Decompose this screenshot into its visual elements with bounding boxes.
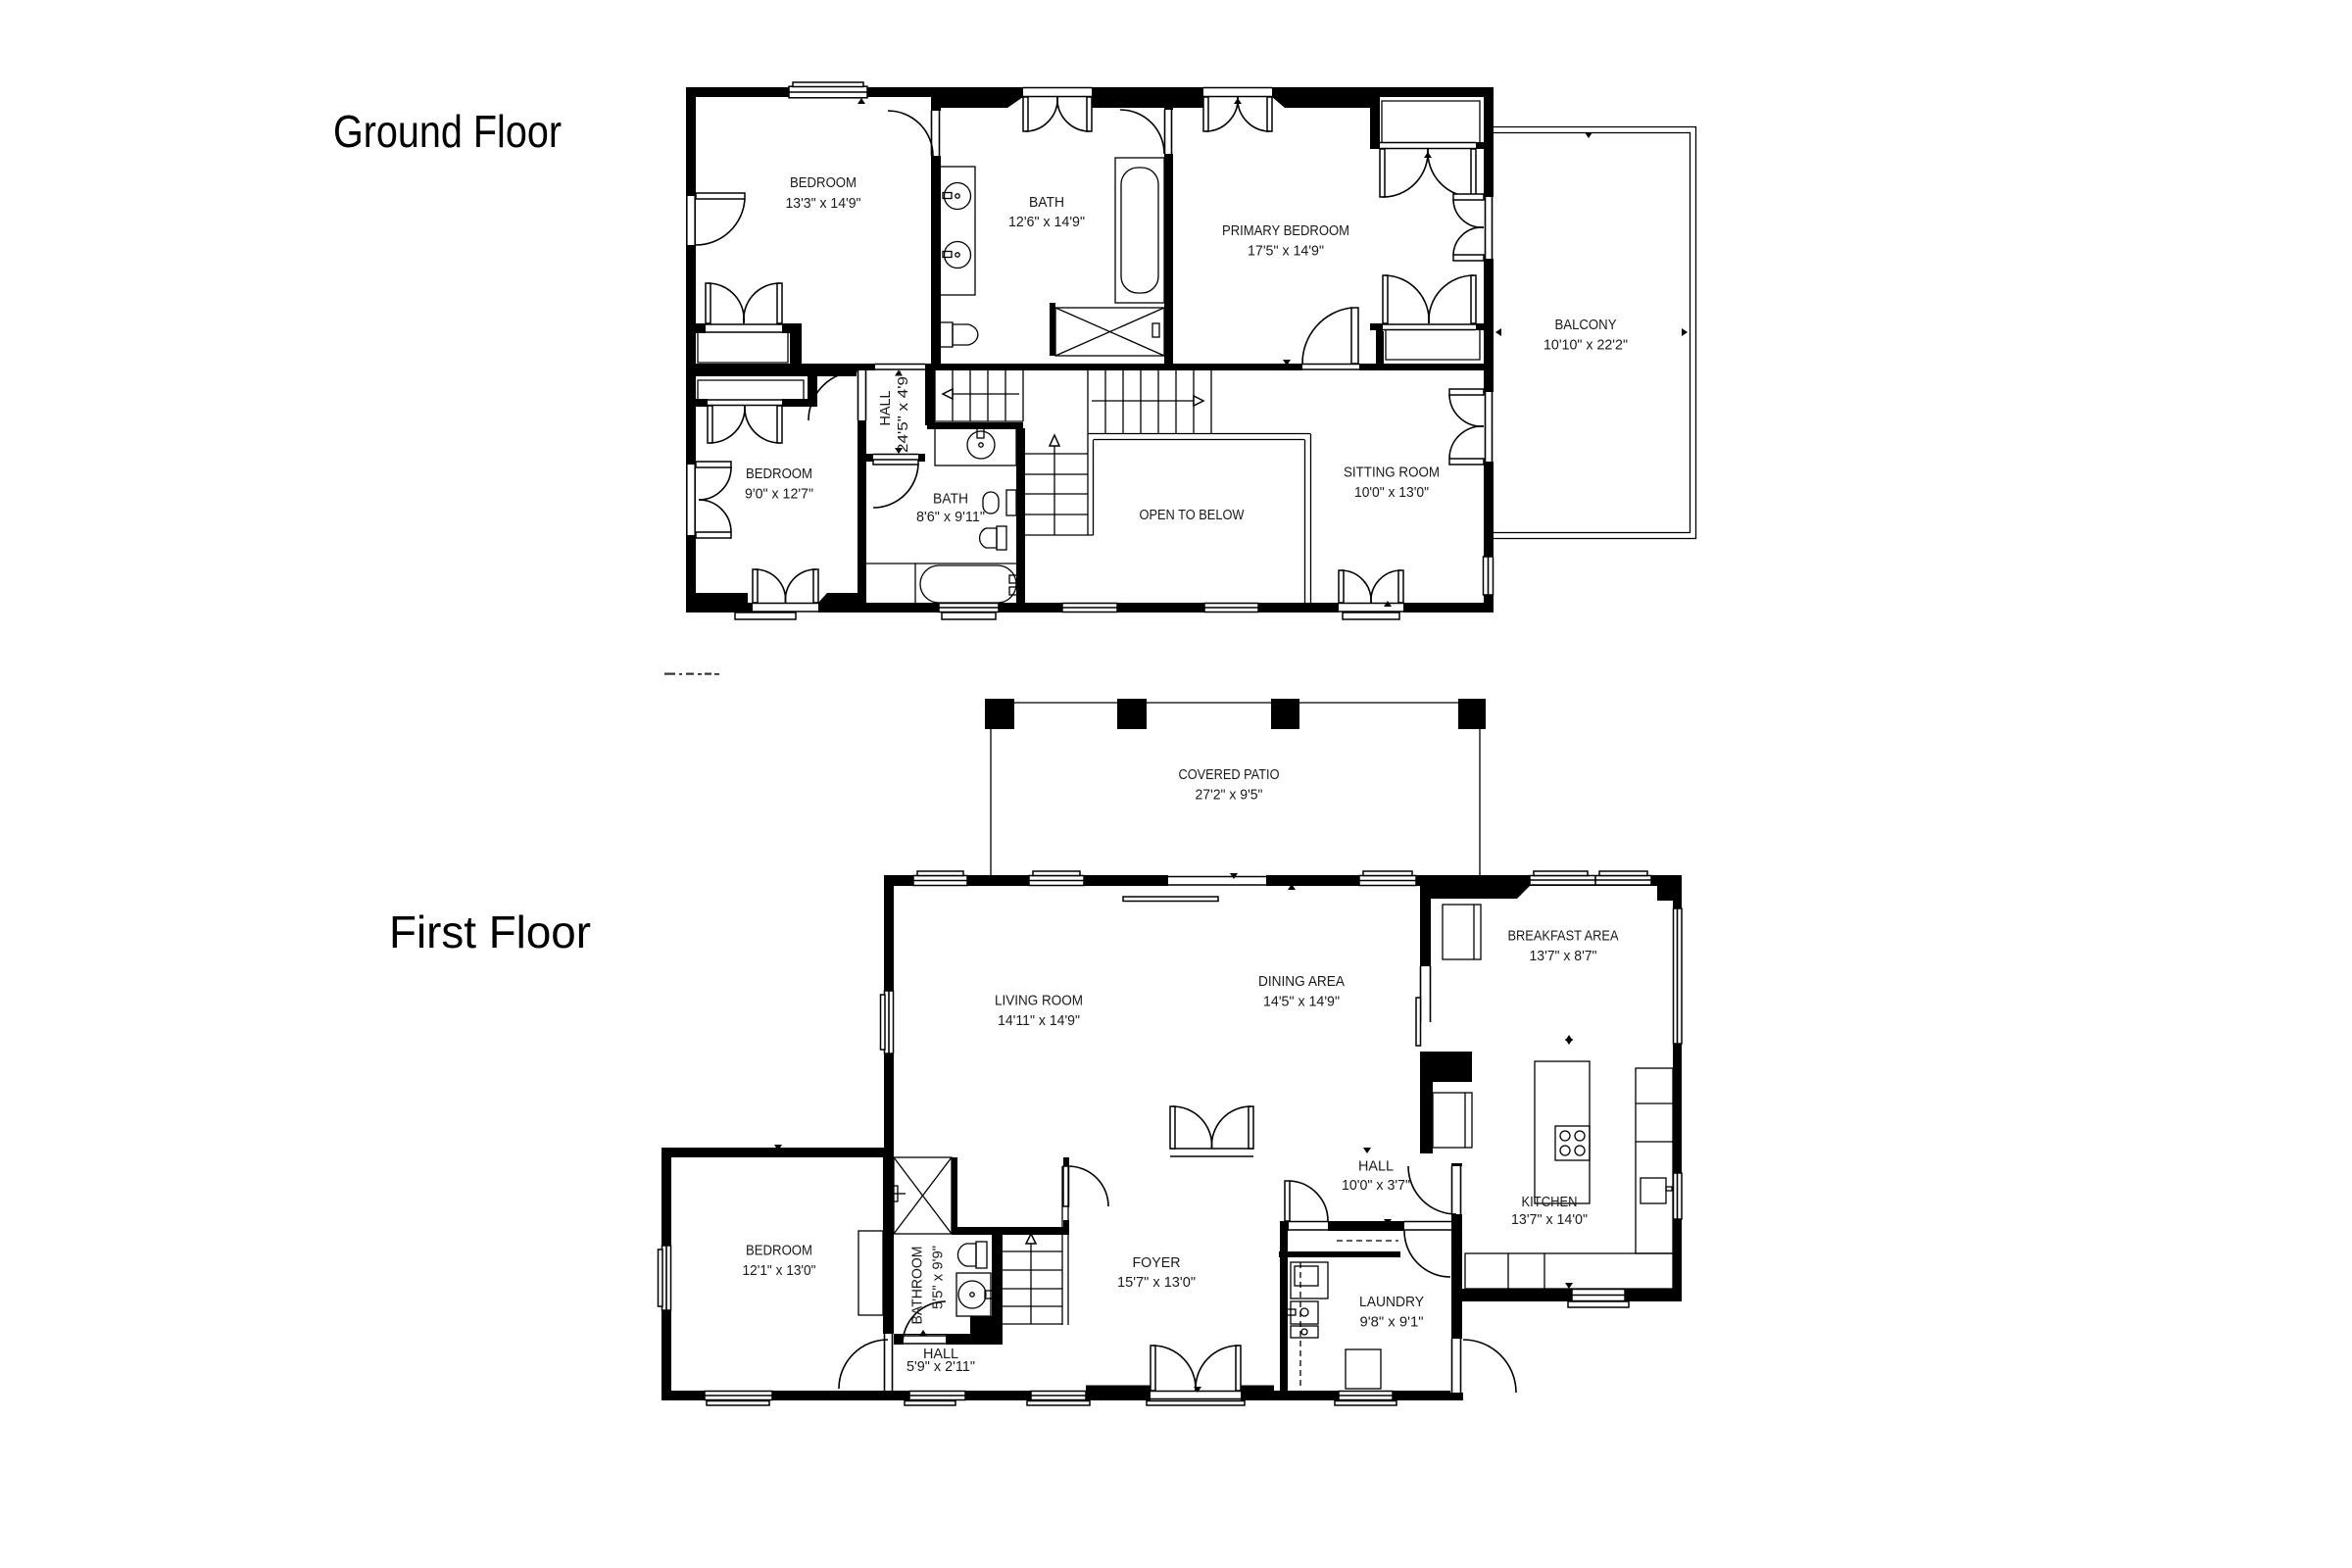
svg-text:HALL: HALL: [878, 391, 894, 426]
svg-text:Ground Floor: Ground Floor: [333, 106, 562, 157]
svg-text:LAUNDRY: LAUNDRY: [1359, 1295, 1424, 1310]
svg-text:BATH: BATH: [933, 492, 968, 508]
svg-text:KITCHEN: KITCHEN: [1522, 1195, 1578, 1210]
svg-text:PRIMARY BEDROOM: PRIMARY BEDROOM: [1222, 223, 1349, 239]
svg-text:BEDROOM: BEDROOM: [790, 175, 857, 191]
svg-text:13'7" x 14'0": 13'7" x 14'0": [1511, 1212, 1588, 1228]
svg-text:14'11" x 14'9": 14'11" x 14'9": [998, 1013, 1080, 1029]
svg-text:BEDROOM: BEDROOM: [746, 466, 812, 482]
svg-text:BREAKFAST AREA: BREAKFAST AREA: [1508, 929, 1619, 945]
svg-text:13'3" x 14'9": 13'3" x 14'9": [786, 196, 861, 212]
svg-text:10'0" x 13'0": 10'0" x 13'0": [1354, 485, 1429, 501]
svg-text:BEDROOM: BEDROOM: [746, 1244, 812, 1259]
svg-text:24'5" x 4'9": 24'5" x 4'9": [896, 370, 911, 453]
svg-text:FOYER: FOYER: [1133, 1255, 1181, 1271]
svg-text:SITTING ROOM: SITTING ROOM: [1344, 465, 1440, 481]
svg-text:BALCONY: BALCONY: [1555, 318, 1617, 333]
svg-text:13'7" x 8'7": 13'7" x 8'7": [1530, 949, 1597, 964]
svg-text:HALL: HALL: [1358, 1159, 1394, 1175]
svg-text:LIVING ROOM: LIVING ROOM: [995, 994, 1083, 1009]
svg-text:12'6" x 14'9": 12'6" x 14'9": [1008, 215, 1085, 230]
svg-text:27'2" x 9'5": 27'2" x 9'5": [1196, 788, 1263, 804]
svg-text:10'0" x 3'7": 10'0" x 3'7": [1342, 1178, 1410, 1194]
svg-text:OPEN TO BELOW: OPEN TO BELOW: [1140, 508, 1245, 523]
svg-text:BATHROOM: BATHROOM: [910, 1247, 926, 1325]
svg-text:BATH: BATH: [1029, 195, 1064, 211]
svg-text:14'5" x 14'9": 14'5" x 14'9": [1263, 995, 1340, 1010]
svg-text:5'9" x 2'11": 5'9" x 2'11": [906, 1359, 975, 1375]
svg-text:9'0" x 12'7": 9'0" x 12'7": [745, 487, 813, 503]
svg-text:15'7" x 13'0": 15'7" x 13'0": [1117, 1275, 1196, 1291]
svg-text:5'5" x 9'9": 5'5" x 9'9": [931, 1246, 947, 1309]
svg-text:17'5" x 14'9": 17'5" x 14'9": [1248, 244, 1324, 260]
svg-text:First Floor: First Floor: [389, 906, 591, 957]
svg-text:10'10" x 22'2": 10'10" x 22'2": [1543, 338, 1628, 354]
svg-text:12'1" x 13'0": 12'1" x 13'0": [743, 1263, 816, 1279]
svg-text:DINING AREA: DINING AREA: [1258, 974, 1345, 990]
svg-text:8'6" x 9'11": 8'6" x 9'11": [916, 510, 985, 525]
svg-text:COVERED PATIO: COVERED PATIO: [1179, 767, 1280, 783]
svg-text:9'8" x 9'1": 9'8" x 9'1": [1360, 1315, 1424, 1331]
